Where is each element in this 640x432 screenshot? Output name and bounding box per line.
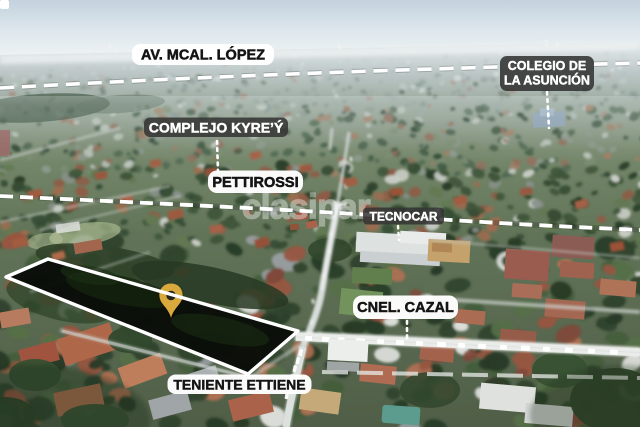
svg-text:clasipar: clasipar (242, 188, 371, 227)
svg-text:PETTIROSSI: PETTIROSSI (212, 175, 298, 191)
svg-text:TENIENTE ETTIENE: TENIENTE ETTIENE (173, 377, 305, 393)
svg-text:LA ASUNCIÓN: LA ASUNCIÓN (504, 73, 590, 88)
svg-text:CNEL. CAZAL: CNEL. CAZAL (357, 300, 454, 316)
svg-text:TECNOCAR: TECNOCAR (370, 210, 438, 224)
svg-text:COMPLEJO KYRE’Ý: COMPLEJO KYRE’Ý (149, 119, 284, 136)
svg-text:COLEGIO DE: COLEGIO DE (508, 59, 586, 73)
svg-text:AV. MCAL. LÓPEZ: AV. MCAL. LÓPEZ (141, 46, 265, 64)
